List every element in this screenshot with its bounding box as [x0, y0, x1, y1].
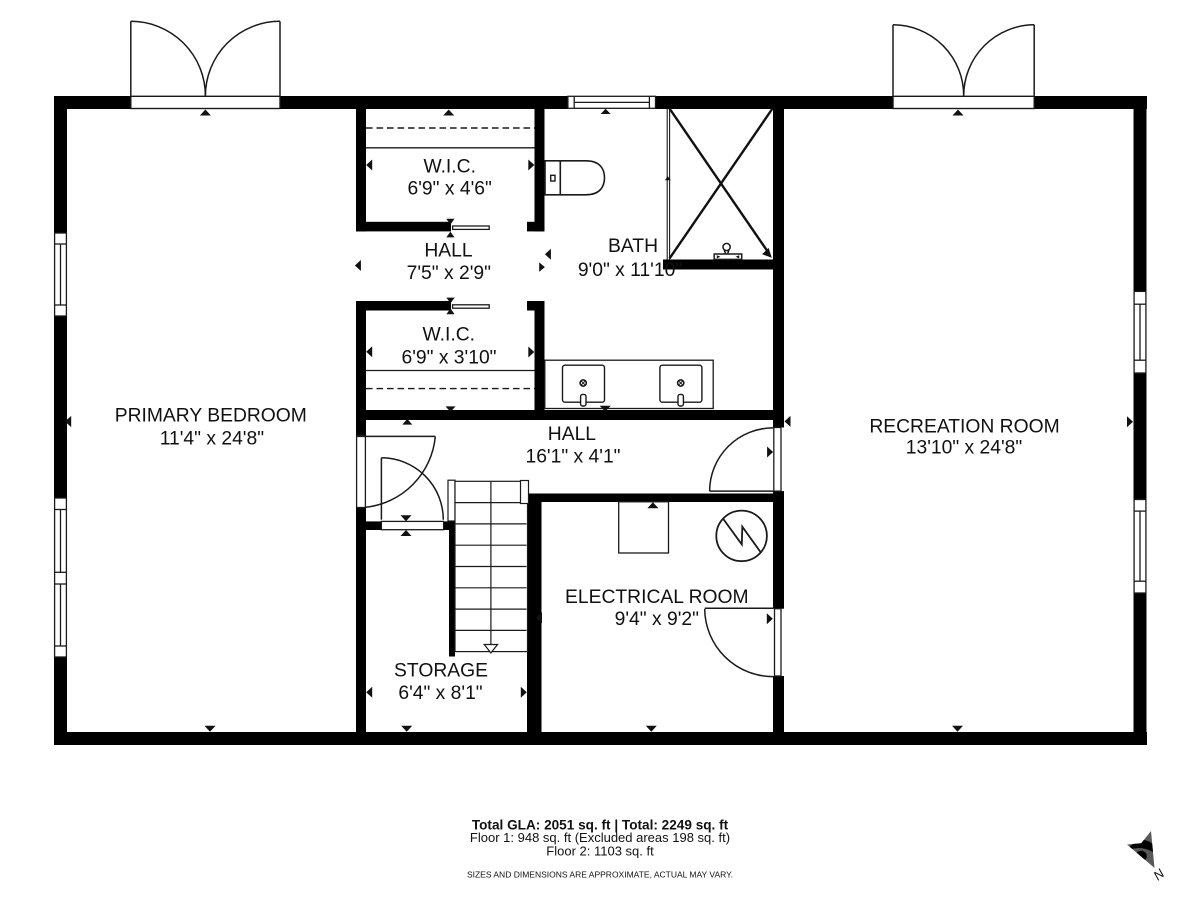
svg-text:W.I.C.: W.I.C. — [423, 156, 476, 177]
svg-text:13'10" x 24'8": 13'10" x 24'8" — [906, 437, 1023, 458]
svg-text:11'4" x 24'8": 11'4" x 24'8" — [160, 428, 264, 449]
svg-text:7'5" x 2'9": 7'5" x 2'9" — [407, 263, 491, 284]
svg-text:SIZES AND DIMENSIONS ARE APPRO: SIZES AND DIMENSIONS ARE APPROXIMATE, AC… — [467, 870, 733, 880]
svg-text:6'4" x 8'1": 6'4" x 8'1" — [398, 683, 482, 704]
svg-text:6'9" x 4'6": 6'9" x 4'6" — [408, 178, 492, 199]
svg-text:STORAGE: STORAGE — [394, 661, 488, 682]
svg-text:Floor 2: 1103 sq. ft: Floor 2: 1103 sq. ft — [546, 844, 654, 859]
svg-text:ELECTRICAL ROOM: ELECTRICAL ROOM — [565, 587, 749, 608]
svg-text:6'9" x 3'10": 6'9" x 3'10" — [401, 348, 496, 369]
svg-text:9'4" x 9'2": 9'4" x 9'2" — [615, 609, 699, 630]
svg-text:16'1" x 4'1": 16'1" x 4'1" — [525, 447, 620, 468]
svg-text:HALL: HALL — [548, 424, 597, 445]
svg-text:HALL: HALL — [424, 241, 473, 262]
svg-text:PRIMARY BEDROOM: PRIMARY BEDROOM — [115, 406, 307, 427]
svg-text:W.I.C.: W.I.C. — [423, 325, 476, 346]
svg-text:RECREATION ROOM: RECREATION ROOM — [869, 417, 1059, 438]
svg-text:9'0" x 11'10": 9'0" x 11'10" — [578, 260, 682, 281]
svg-text:BATH: BATH — [608, 236, 658, 257]
